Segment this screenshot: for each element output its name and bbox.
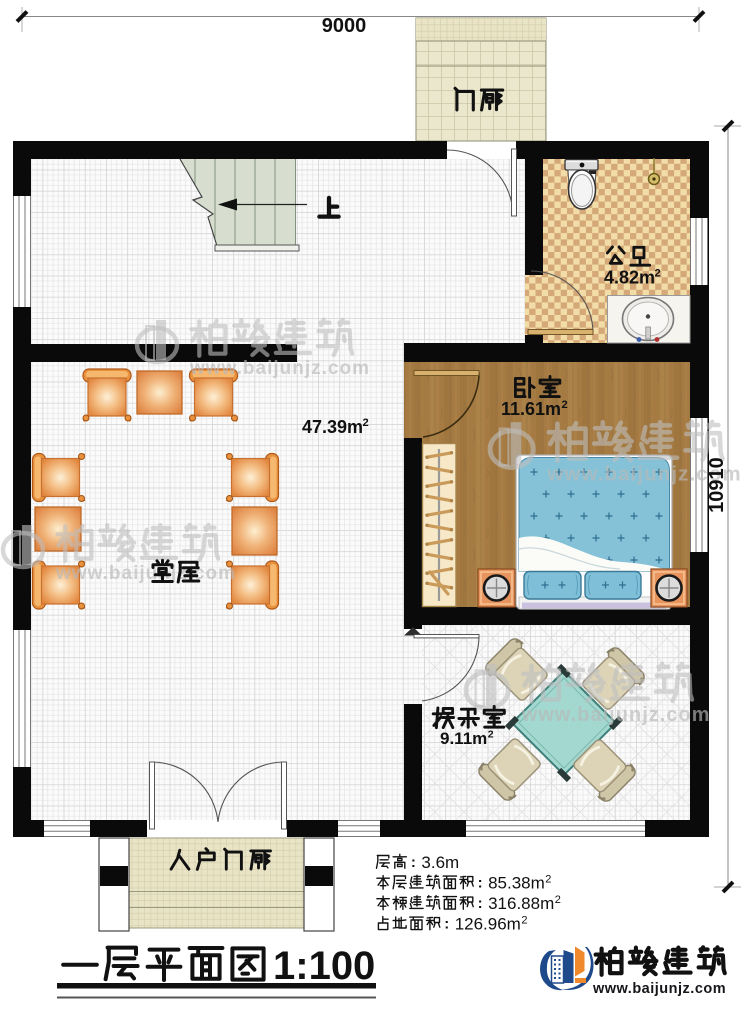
svg-text:www.baijunjz.com: www.baijunjz.com <box>189 358 370 379</box>
svg-text:9.11m: 9.11m <box>440 729 487 748</box>
svg-text::: : <box>478 895 483 912</box>
svg-text:126.96m: 126.96m <box>455 915 521 934</box>
svg-text:9000: 9000 <box>322 15 367 37</box>
svg-text::: : <box>478 875 483 892</box>
svg-text:316.88m: 316.88m <box>488 894 554 913</box>
svg-text:2: 2 <box>562 399 568 411</box>
svg-text::: : <box>411 854 416 871</box>
svg-text:1:100: 1:100 <box>273 944 375 988</box>
svg-text:www.baijunjz.com: www.baijunjz.com <box>521 704 711 726</box>
svg-text:2: 2 <box>488 729 494 741</box>
svg-text:4.82m: 4.82m <box>604 268 655 288</box>
svg-text:2: 2 <box>545 874 551 886</box>
svg-text:2: 2 <box>655 268 661 280</box>
svg-text:2: 2 <box>363 417 369 429</box>
svg-text:47.39m: 47.39m <box>302 417 363 437</box>
svg-text:85.38m: 85.38m <box>488 874 545 893</box>
svg-text:www.baijunjz.com: www.baijunjz.com <box>592 981 726 997</box>
svg-text:2: 2 <box>521 915 527 927</box>
svg-text:www.baijunjz.com: www.baijunjz.com <box>55 563 236 584</box>
svg-text:10910: 10910 <box>706 457 728 513</box>
svg-text:11.61m: 11.61m <box>501 399 561 419</box>
svg-text:3.6m: 3.6m <box>421 853 459 872</box>
svg-text:2: 2 <box>555 894 561 906</box>
svg-text::: : <box>444 916 449 933</box>
